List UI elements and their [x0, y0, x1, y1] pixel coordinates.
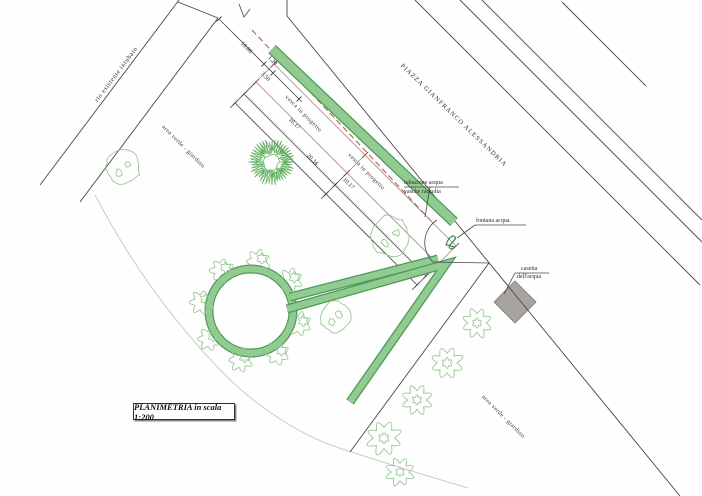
ring-bush-inner	[257, 253, 266, 264]
label-tubazione-acqua: tubazione acqua	[404, 180, 443, 186]
ring-bush-inner	[299, 315, 309, 326]
plan-linework	[0, 0, 702, 496]
shrub-inner	[379, 433, 389, 444]
shrub-inner	[473, 318, 481, 328]
tree-inner-blob	[392, 230, 399, 237]
label-casetta-dellacqua: dell'acqua	[517, 274, 541, 280]
site-boundary-lower	[350, 263, 489, 452]
shrub-outline	[432, 348, 463, 378]
tree-outline	[370, 215, 409, 257]
tree-inner-blob	[116, 169, 122, 176]
tree-inner-blob	[329, 319, 336, 326]
plan-title-box: PLANIMETRIA in scala 1:200	[133, 403, 235, 420]
road-line-c	[415, 0, 700, 285]
green-path-v	[287, 264, 446, 402]
tree-inner-blob	[381, 239, 388, 247]
road-line-a	[482, 0, 702, 220]
shrub-outline	[367, 422, 401, 455]
label-vasche-raccolta: vasche raccolta	[404, 189, 441, 195]
label-casetta: casetta	[521, 266, 537, 272]
road-line-b	[460, 0, 702, 242]
road-line-short	[562, 2, 646, 86]
shrub-inner	[442, 358, 451, 369]
label-fontana-acqua: fontana acqua	[476, 218, 509, 224]
tree-outline	[320, 301, 351, 333]
tree-inner-blob	[335, 311, 342, 318]
plan-title-text: PLANIMETRIA in scala 1:200	[134, 402, 234, 422]
shrub-outline	[386, 458, 414, 486]
leader-hook-icon	[239, 4, 250, 17]
site-boundary	[287, 0, 680, 496]
rio-stub	[178, 2, 218, 18]
shrub-outline	[403, 386, 432, 415]
tree-outline	[105, 150, 139, 185]
shrub-outline	[463, 309, 490, 338]
tree-inner-blob	[125, 162, 131, 167]
ring-bush-inner	[289, 272, 299, 283]
rio-line-2	[80, 18, 218, 202]
water-house-square	[494, 281, 536, 323]
site-plan-canvas: rio esistente intubato PIAZZA GIANFRANCO…	[0, 0, 702, 496]
shrub-inner	[413, 395, 422, 405]
green-strip-main	[272, 49, 454, 222]
rio-line-1	[40, 0, 179, 185]
green-ring-path	[209, 269, 293, 353]
